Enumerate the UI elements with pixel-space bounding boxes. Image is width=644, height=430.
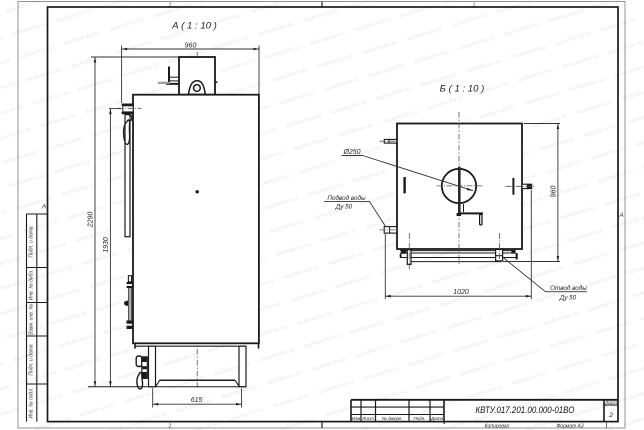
svg-text:Отвод воды: Отвод воды xyxy=(550,284,587,292)
svg-text:Лист: Лист xyxy=(361,416,374,421)
svg-text:Взам. инв. №: Взам. инв. № xyxy=(28,303,34,335)
svg-text:2: 2 xyxy=(168,423,171,429)
svg-text:Подп. и дата: Подп. и дата xyxy=(28,344,34,376)
svg-text:Ду 50: Ду 50 xyxy=(559,295,577,302)
svg-text:А: А xyxy=(41,204,46,211)
svg-text:2: 2 xyxy=(608,412,613,419)
svg-text:Б ( 1 : 10 ): Б ( 1 : 10 ) xyxy=(440,83,485,94)
svg-text:Подп.: Подп. xyxy=(413,416,425,421)
svg-text:960: 960 xyxy=(185,43,197,50)
svg-text:2290: 2290 xyxy=(88,212,95,229)
svg-text:Изм: Изм xyxy=(352,416,361,421)
svg-text:Инв. № подл.: Инв. № подл. xyxy=(28,387,34,418)
svg-text:А: А xyxy=(618,212,623,219)
svg-text:615: 615 xyxy=(191,397,203,404)
svg-text:Дата: Дата xyxy=(430,416,444,421)
svg-text:Ø250: Ø250 xyxy=(342,149,360,156)
svg-text:А ( 1 : 10 ): А ( 1 : 10 ) xyxy=(171,20,217,31)
svg-text:Ду 50: Ду 50 xyxy=(335,203,353,210)
svg-text:Подп. и дата: Подп. и дата xyxy=(28,226,34,258)
svg-text:КВТУ.017.201.00.000-01ВО: КВТУ.017.201.00.000-01ВО xyxy=(476,405,575,415)
svg-text:Копировал: Копировал xyxy=(485,424,510,430)
svg-text:№ докум.: № докум. xyxy=(382,416,402,421)
svg-text:Подвод воды: Подвод воды xyxy=(327,194,366,202)
svg-text:1930: 1930 xyxy=(103,237,110,253)
svg-text:Лист: Лист xyxy=(604,400,617,405)
svg-text:1020: 1020 xyxy=(453,289,469,296)
svg-text:Формат А3: Формат А3 xyxy=(556,424,584,430)
svg-text:960: 960 xyxy=(550,186,557,198)
svg-text:Инв. № дубл.: Инв. № дубл. xyxy=(28,270,34,301)
